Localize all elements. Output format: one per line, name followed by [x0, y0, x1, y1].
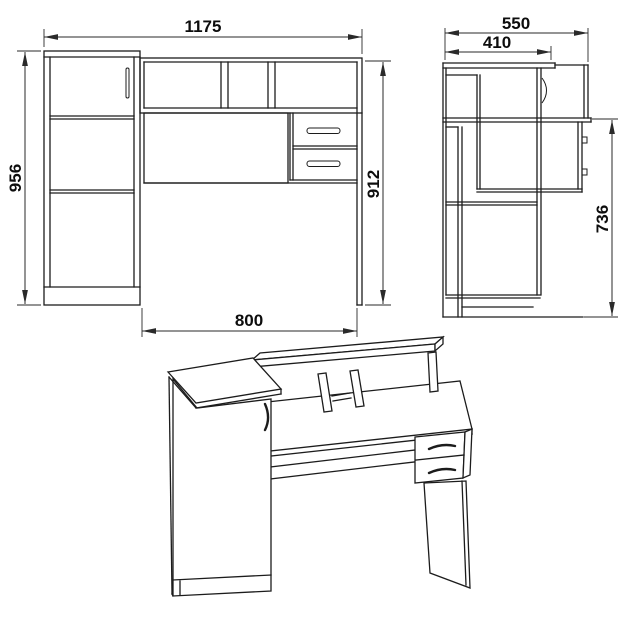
- drawer-handle-bottom: [307, 161, 340, 167]
- side-profile: [443, 63, 591, 317]
- dimension-kneehole-width: 800: [235, 311, 263, 330]
- front-hutch: [140, 58, 362, 113]
- iso-cabinet: [168, 358, 281, 596]
- isometric-view: [168, 337, 472, 596]
- side-view: 550 410 736: [443, 14, 618, 317]
- dimension-overall-width: 1175: [185, 17, 222, 36]
- dimension-desktop-height: 736: [593, 205, 612, 233]
- front-dimensions: 1175 956 912 800: [6, 17, 391, 337]
- cabinet-door-handle: [126, 68, 129, 98]
- dimension-overall-depth: 550: [502, 14, 530, 33]
- front-desk-body: [144, 62, 362, 305]
- dimension-cabinet-height: 956: [6, 164, 25, 192]
- front-view: 1175 956 912 800: [6, 17, 391, 337]
- side-drawer-knob-bottom: [582, 169, 587, 175]
- front-cabinet: [44, 51, 140, 305]
- side-dimensions: 550 410 736: [445, 14, 618, 317]
- dimension-desk-height: 912: [364, 170, 383, 198]
- side-door-handle: [542, 78, 547, 103]
- drawer-handle-top: [307, 128, 340, 134]
- side-drawer-knob-top: [582, 137, 587, 143]
- dimension-cabinet-depth: 410: [483, 33, 511, 52]
- desk-blueprint-svg: 1175 956 912 800: [0, 0, 630, 630]
- technical-drawing-page: 1175 956 912 800: [0, 0, 630, 630]
